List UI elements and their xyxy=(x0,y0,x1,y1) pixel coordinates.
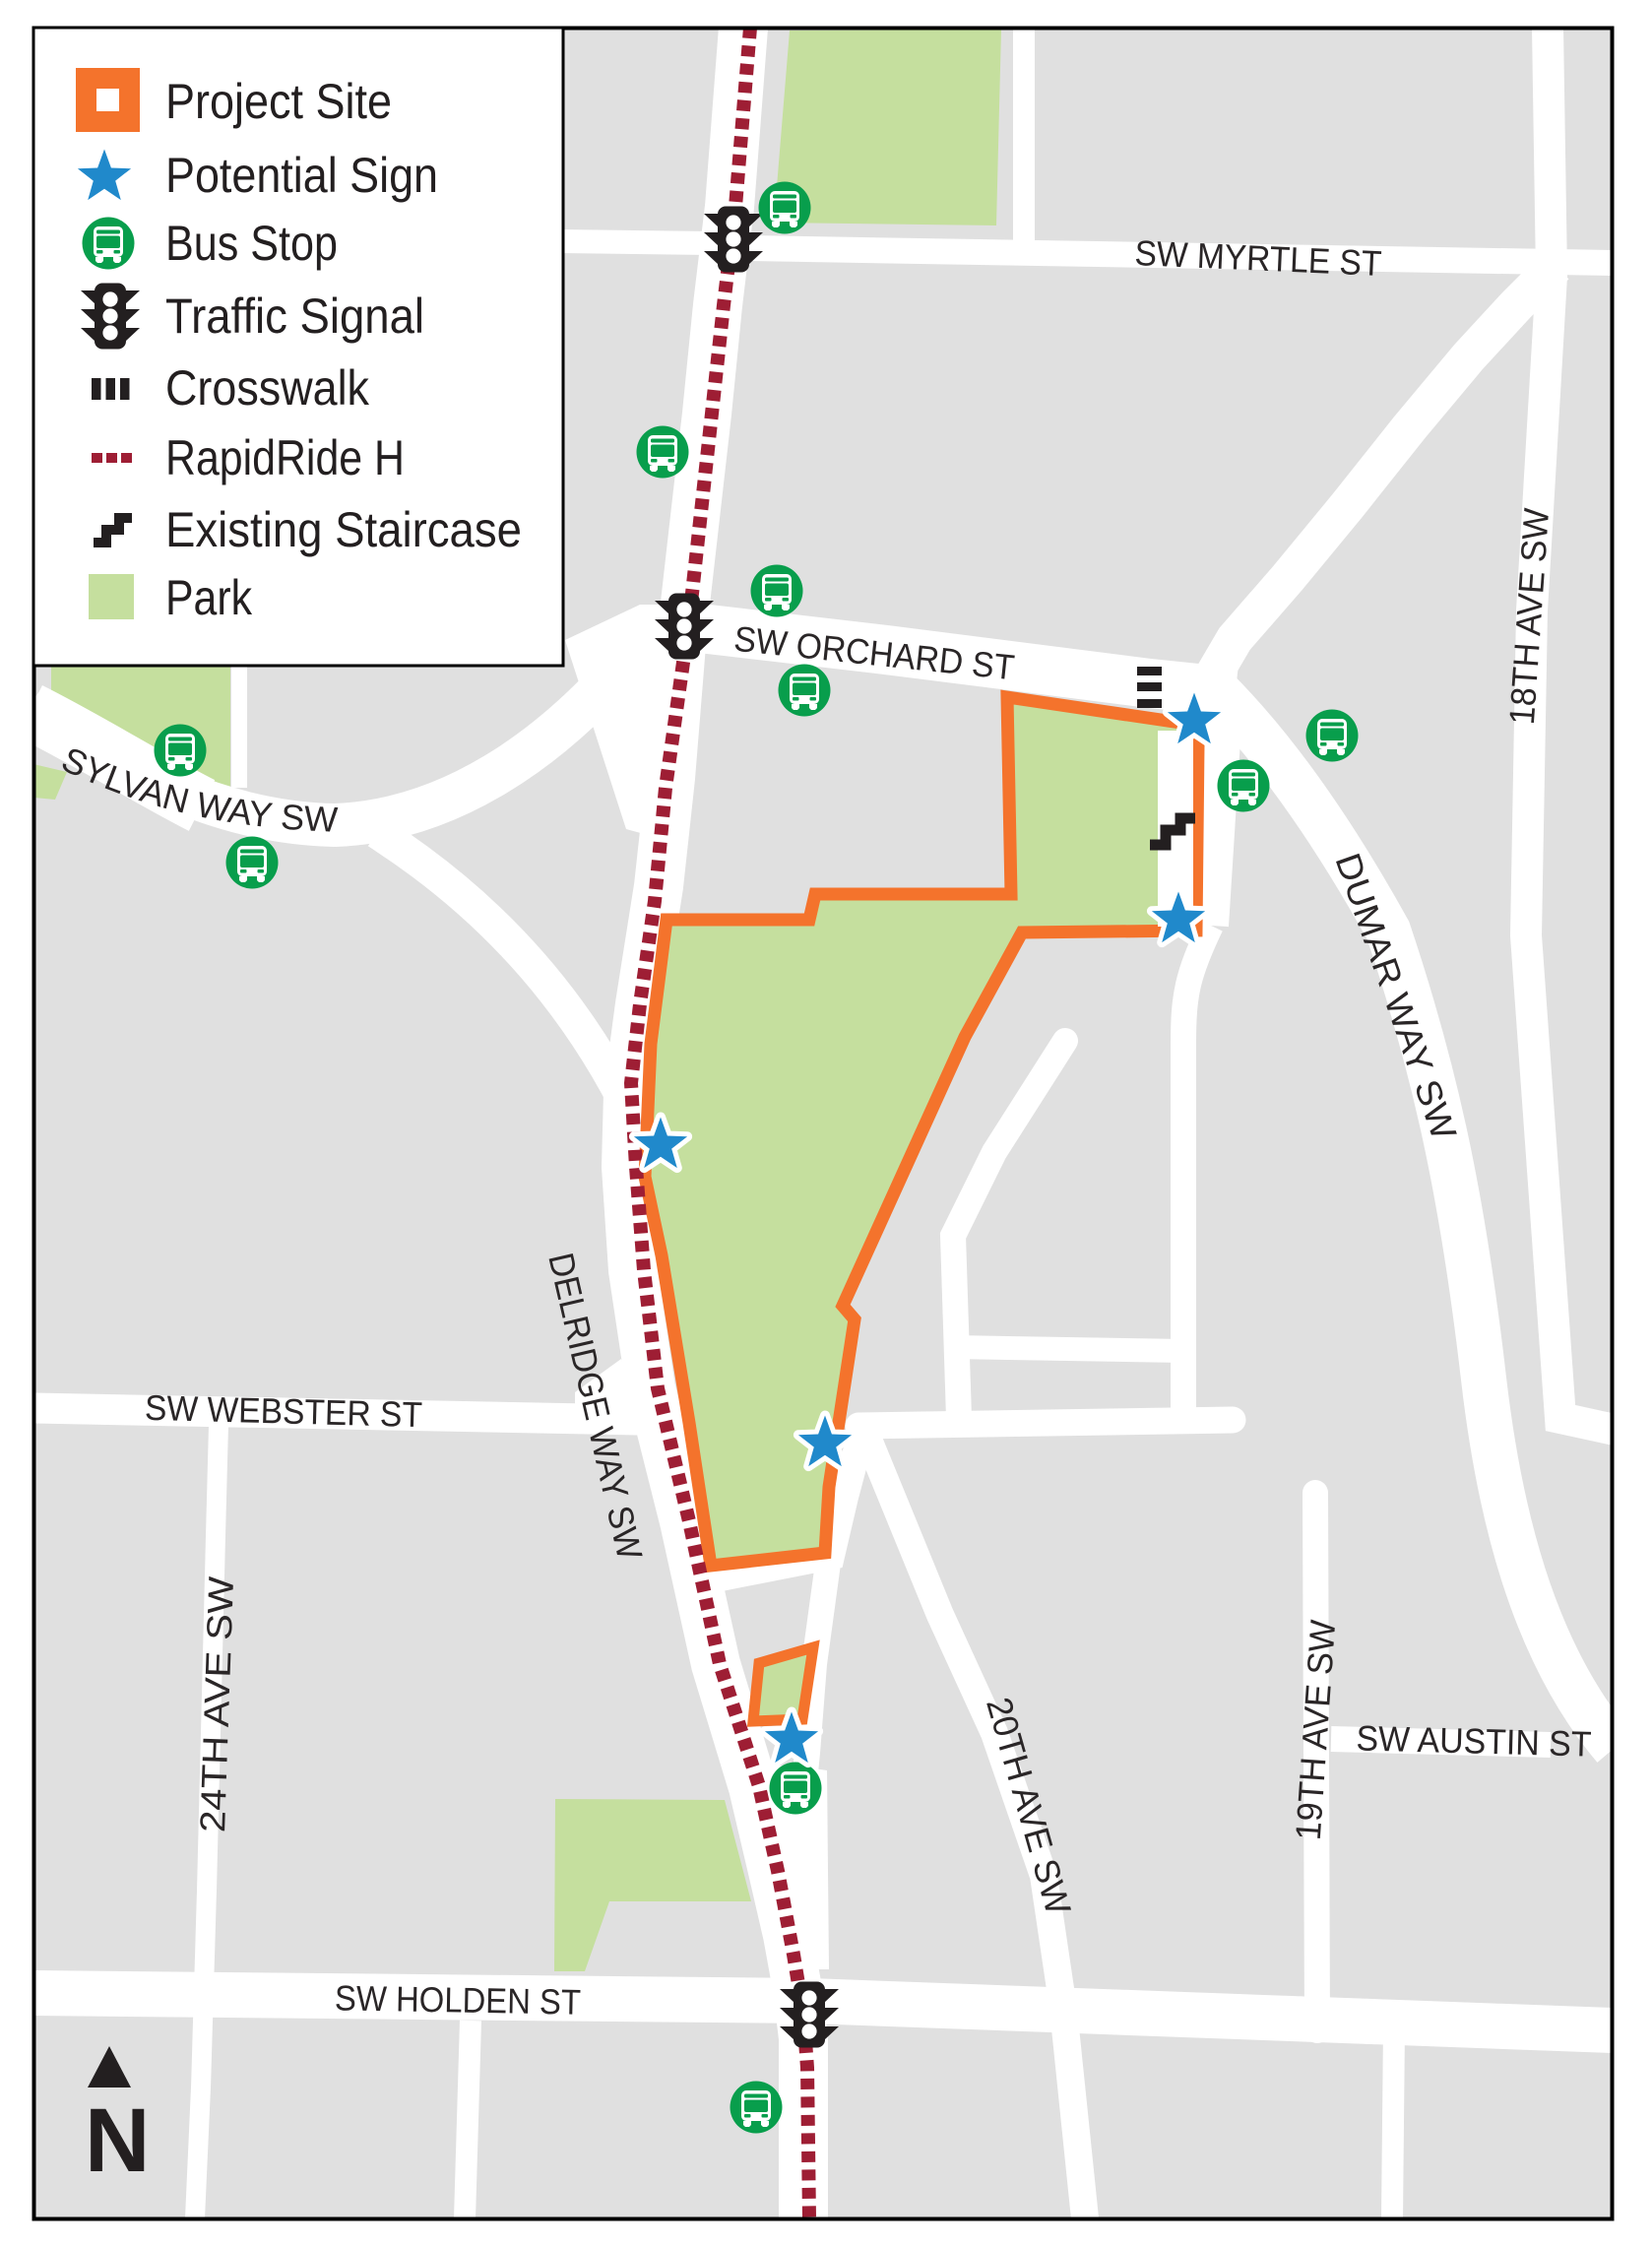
svg-text:Bus Stop: Bus Stop xyxy=(165,216,338,271)
svg-text:RapidRide H: RapidRide H xyxy=(165,430,405,485)
svg-text:Traffic Signal: Traffic Signal xyxy=(165,289,424,344)
svg-text:SW AUSTIN ST: SW AUSTIN ST xyxy=(1356,1717,1592,1764)
svg-text:Project Site: Project Site xyxy=(165,74,392,129)
svg-text:N: N xyxy=(85,2090,150,2191)
svg-text:Potential Sign: Potential Sign xyxy=(165,148,438,203)
svg-text:SW WEBSTER ST: SW WEBSTER ST xyxy=(145,1387,423,1435)
svg-text:Existing Staircase: Existing Staircase xyxy=(165,502,522,557)
svg-text:Crosswalk: Crosswalk xyxy=(165,360,370,416)
svg-text:SW HOLDEN ST: SW HOLDEN ST xyxy=(335,1977,582,2022)
svg-text:Park: Park xyxy=(165,570,253,625)
